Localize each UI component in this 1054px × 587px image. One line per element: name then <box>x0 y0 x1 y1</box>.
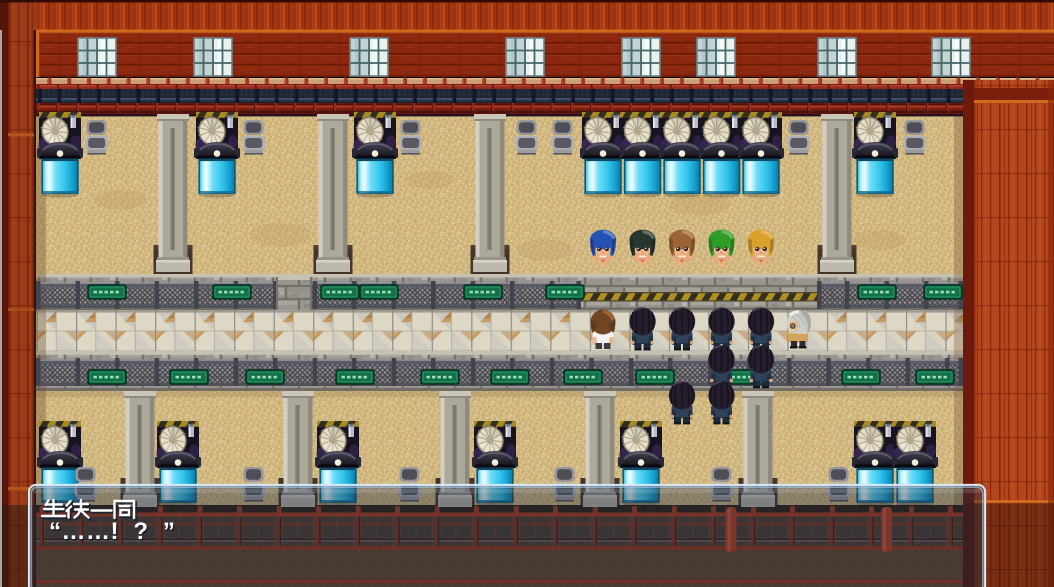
svg-text:“……! ? ”: “……! ? ” <box>49 518 175 545</box>
